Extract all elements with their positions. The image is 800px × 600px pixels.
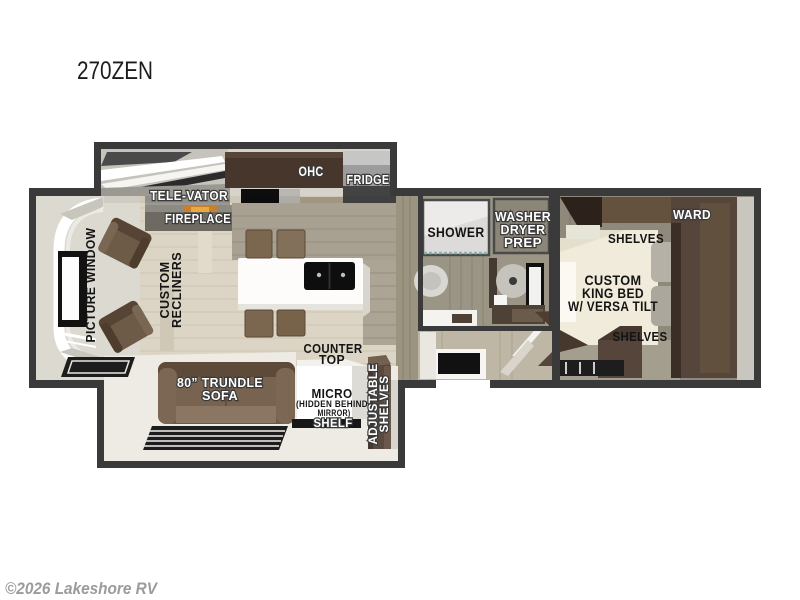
svg-text:TELE-VATOR: TELE-VATOR bbox=[150, 188, 228, 203]
svg-text:SHOWER: SHOWER bbox=[428, 225, 485, 240]
svg-text:SHELVES: SHELVES bbox=[613, 329, 668, 344]
svg-text:SOFA: SOFA bbox=[202, 388, 238, 403]
svg-text:270ZEN: 270ZEN bbox=[77, 57, 153, 85]
svg-text:OHC: OHC bbox=[299, 163, 324, 179]
svg-text:WARD: WARD bbox=[673, 207, 711, 222]
svg-text:PICTURE WINDOW: PICTURE WINDOW bbox=[83, 227, 98, 342]
svg-text:FIREPLACE: FIREPLACE bbox=[165, 211, 231, 226]
svg-text:W/ VERSA TILT: W/ VERSA TILT bbox=[568, 299, 658, 314]
svg-text:©2026 Lakeshore RV: ©2026 Lakeshore RV bbox=[5, 579, 158, 598]
svg-text:TOP: TOP bbox=[319, 352, 345, 367]
svg-text:SHELVES: SHELVES bbox=[377, 376, 391, 433]
svg-text:SHELF: SHELF bbox=[314, 416, 353, 430]
svg-text:FRIDGE: FRIDGE bbox=[347, 172, 390, 187]
svg-text:PREP: PREP bbox=[504, 235, 542, 250]
svg-text:SHELVES: SHELVES bbox=[608, 231, 664, 246]
svg-text:RECLINERS: RECLINERS bbox=[169, 252, 184, 328]
